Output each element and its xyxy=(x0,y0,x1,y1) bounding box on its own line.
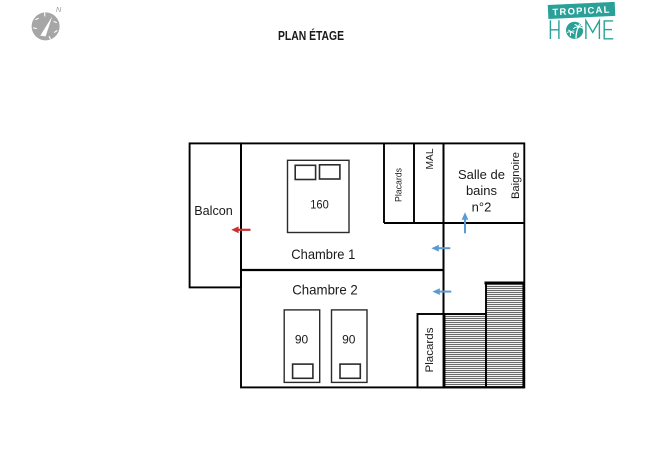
svg-text:Chambre 1: Chambre 1 xyxy=(291,246,355,262)
svg-text:Placards: Placards xyxy=(393,168,403,202)
svg-text:PLAN ÉTAGE: PLAN ÉTAGE xyxy=(278,28,344,43)
svg-text:Chambre 2: Chambre 2 xyxy=(292,281,358,297)
svg-text:Salle de: Salle de xyxy=(458,167,505,182)
svg-text:MAL: MAL xyxy=(425,148,436,169)
svg-text:N: N xyxy=(56,5,62,14)
svg-text:bains: bains xyxy=(466,183,498,198)
svg-text:90: 90 xyxy=(342,333,356,347)
svg-text:Placards: Placards xyxy=(424,327,436,373)
svg-text:160: 160 xyxy=(310,198,329,212)
svg-text:Balcon: Balcon xyxy=(194,203,233,218)
svg-text:n°2: n°2 xyxy=(472,200,492,215)
svg-text:90: 90 xyxy=(295,333,309,347)
svg-text:Baignoire: Baignoire xyxy=(510,152,522,199)
